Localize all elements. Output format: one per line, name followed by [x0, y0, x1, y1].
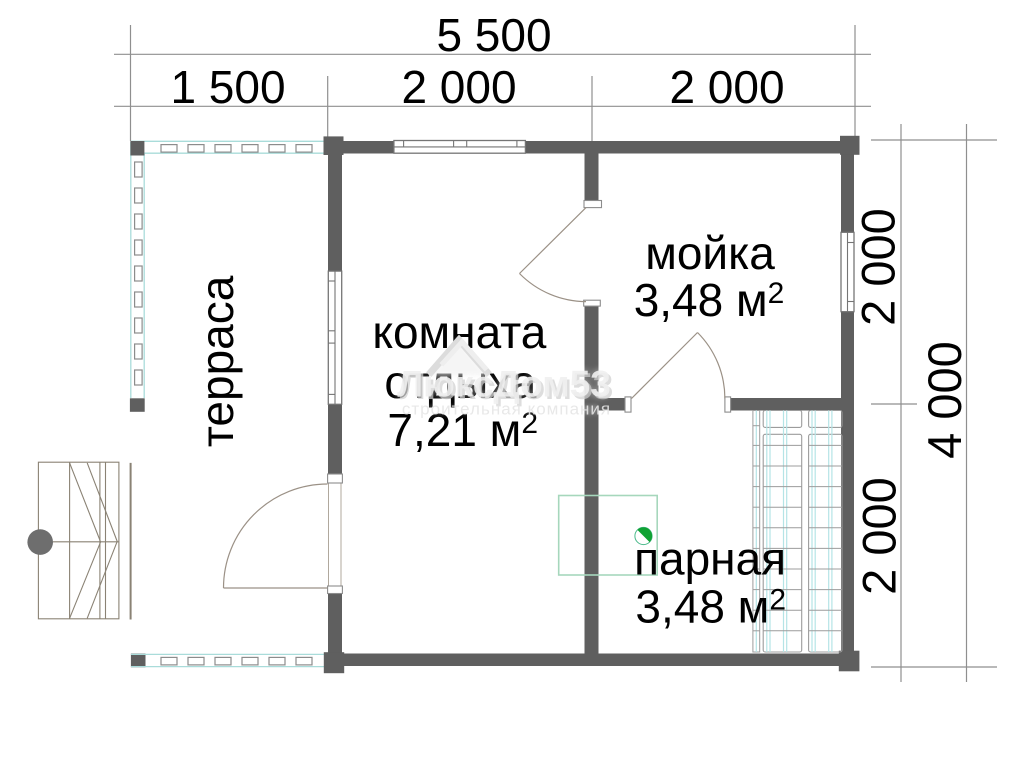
- svg-text:строительная компания: строительная компания: [402, 400, 611, 419]
- svg-text:терраса: терраса: [191, 275, 243, 447]
- svg-text:3,48 м2: 3,48 м2: [635, 581, 786, 633]
- svg-text:парная: парная: [634, 533, 786, 585]
- svg-text:5 500: 5 500: [436, 9, 551, 61]
- svg-text:ЛюксДом53: ЛюксДом53: [397, 364, 611, 405]
- svg-text:мойка: мойка: [645, 227, 775, 279]
- svg-text:2 000: 2 000: [669, 61, 784, 113]
- svg-text:2 000: 2 000: [852, 208, 905, 326]
- svg-text:3,48 м2: 3,48 м2: [634, 274, 785, 326]
- svg-text:1 500: 1 500: [170, 61, 285, 113]
- svg-text:2 000: 2 000: [401, 61, 516, 113]
- svg-text:2 000: 2 000: [853, 477, 906, 595]
- svg-text:4 000: 4 000: [918, 341, 971, 459]
